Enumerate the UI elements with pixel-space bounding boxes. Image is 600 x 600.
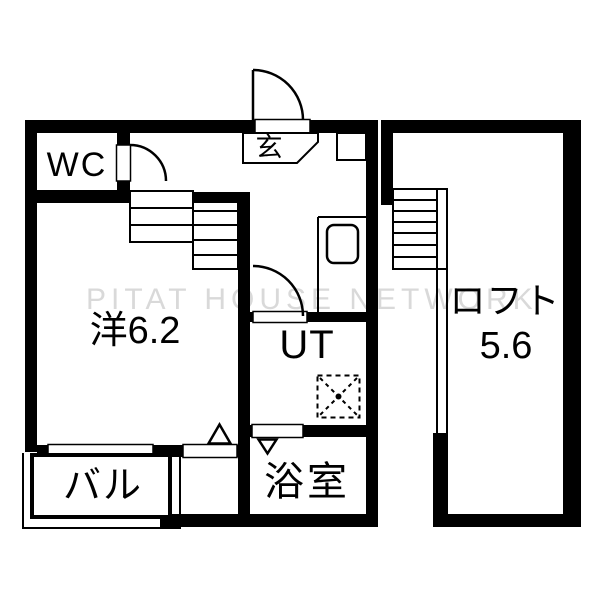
wall-wc-right-lower bbox=[117, 181, 130, 203]
wall-bottom bbox=[160, 514, 378, 527]
loft-label: ロフト bbox=[449, 283, 560, 319]
wall-hall-room-divider bbox=[238, 192, 250, 527]
loft-size-label: 5.6 bbox=[480, 327, 533, 365]
balcony-label: バル bbox=[63, 467, 143, 505]
floorplan: PITAT HOUSE NETWORK bbox=[0, 0, 600, 600]
shoe-cabinet bbox=[337, 133, 366, 160]
ut-door-arc bbox=[253, 266, 303, 316]
wc-door-opening bbox=[117, 145, 131, 181]
washing-machine-area bbox=[318, 376, 360, 418]
alcove-opening bbox=[183, 445, 237, 458]
stairs-flight-b bbox=[193, 202, 238, 269]
ut-door-opening bbox=[253, 312, 307, 323]
entrance-opening bbox=[255, 120, 310, 134]
utility-room-label: UT bbox=[279, 325, 334, 365]
loft-ladder bbox=[393, 189, 447, 437]
wall-right bbox=[366, 120, 378, 527]
wall-wc-right-upper bbox=[117, 132, 130, 145]
bath-door-opening bbox=[252, 425, 303, 438]
loft-walls bbox=[381, 120, 581, 527]
bathroom-label: 浴室 bbox=[264, 462, 350, 502]
western-room-label: 洋6.2 bbox=[90, 312, 181, 350]
triangle-up-marker bbox=[209, 425, 231, 444]
wc-door-arc bbox=[130, 145, 166, 181]
loft-wall-left-upper bbox=[381, 120, 393, 205]
washing-machine-center-dot bbox=[336, 394, 342, 400]
loft-wall-right bbox=[563, 120, 581, 527]
sink bbox=[327, 225, 358, 263]
loft-wall-top bbox=[381, 120, 581, 133]
entrance-label: 玄 bbox=[256, 135, 283, 162]
wall-top bbox=[25, 120, 378, 133]
loft-wall-left-lower bbox=[433, 433, 448, 518]
loft-wall-bottom bbox=[433, 514, 581, 527]
kitchen-fixtures bbox=[318, 217, 366, 312]
staircase bbox=[130, 191, 238, 269]
wc-room-label: WC bbox=[47, 148, 108, 182]
wall-below-wc bbox=[25, 190, 130, 203]
wall-stairs-top bbox=[193, 192, 238, 202]
entrance-door-arc bbox=[253, 70, 303, 120]
triangle-down-marker bbox=[259, 440, 277, 454]
wall-left bbox=[25, 120, 37, 452]
stairs-flight-a bbox=[130, 191, 193, 242]
